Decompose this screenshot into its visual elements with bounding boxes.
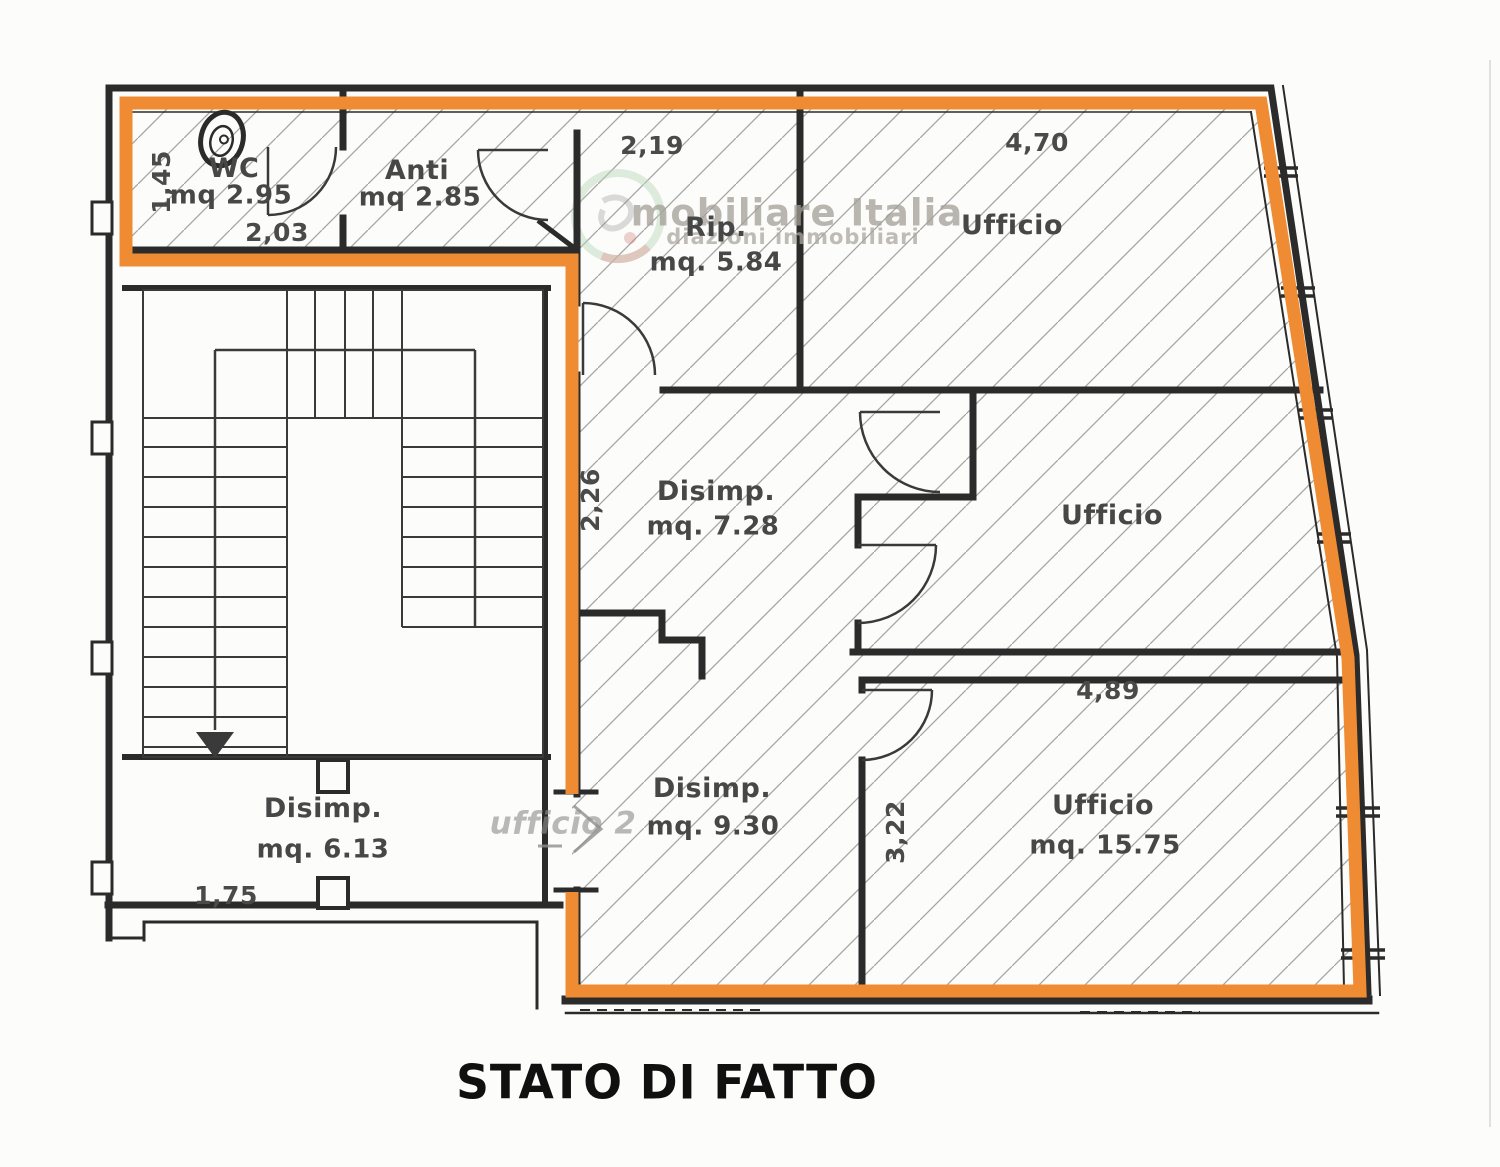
room-area-disimp-left: mq. 6.13	[257, 836, 390, 863]
room-label-ufficio-mid: Ufficio	[1061, 502, 1163, 530]
room-label-rip: Rip.	[685, 214, 747, 242]
dimension-wc-width: 2,03	[245, 220, 309, 246]
dimension-disimp-left-bottom: 1,75	[194, 883, 258, 909]
dimension-ufficio-bottom-height: 3,22	[883, 800, 909, 864]
room-area-wc: mq 2.95	[170, 182, 292, 209]
room-area-anti: mq 2.85	[359, 184, 481, 211]
room-area-disimp-center: mq. 7.28	[647, 513, 780, 540]
room-label-ufficio-top: Ufficio	[961, 212, 1063, 240]
room-area-disimp-lower: mq. 9.30	[647, 813, 780, 840]
dimension-rip-top: 2,19	[620, 133, 684, 159]
room-label-disimp-left: Disimp.	[264, 795, 382, 823]
sheet-title: STATO DI FATTO	[456, 1058, 878, 1107]
staircase	[143, 290, 543, 758]
room-label-wc: WC	[209, 155, 260, 183]
floorplan-sheet: mobiliare Italia diazioni immobiliari WC…	[0, 0, 1500, 1167]
room-area-ufficio-bottom: mq. 15.75	[1029, 832, 1180, 859]
handwritten-note: ufficio 2	[490, 808, 637, 841]
dimension-wc-height: 1,45	[149, 150, 175, 214]
scan-edge-line	[1489, 60, 1491, 1127]
room-label-ufficio-bottom: Ufficio	[1052, 792, 1154, 820]
room-label-disimp-lower: Disimp.	[653, 775, 771, 803]
dimension-ufficio-bottom-top: 4,89	[1076, 678, 1140, 704]
room-label-disimp-center: Disimp.	[657, 478, 775, 506]
room-area-rip: mq. 5.84	[650, 249, 783, 276]
dimension-ufficio-top-width: 4,70	[1005, 130, 1069, 156]
dimension-disimp-center-height: 2,26	[578, 468, 604, 532]
room-label-anti: Anti	[385, 157, 449, 185]
